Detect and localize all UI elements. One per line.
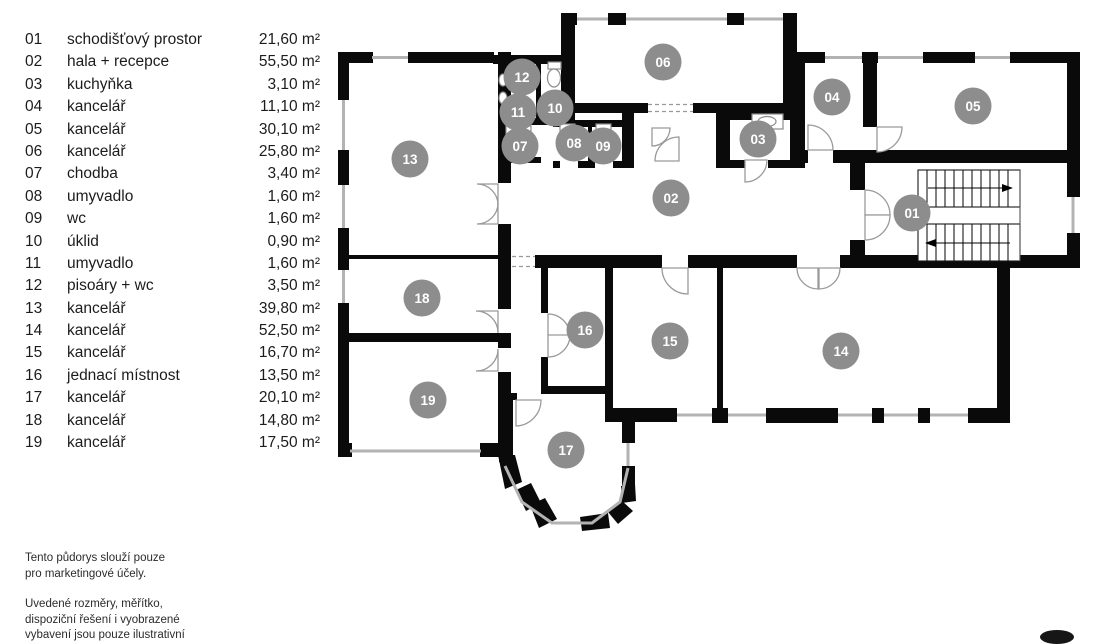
room-number-text: 11 <box>511 105 526 120</box>
room-number-text: 03 <box>750 132 766 147</box>
room-label-07: 07 <box>502 128 539 165</box>
room-number-text: 07 <box>512 139 527 154</box>
room-label-03: 03 <box>740 121 777 158</box>
room-label-17: 17 <box>548 432 585 469</box>
room-number-text: 16 <box>577 323 593 338</box>
room-label-11: 11 <box>500 94 537 131</box>
toilet-fixture <box>548 62 562 87</box>
room-number-text: 18 <box>414 291 430 306</box>
room-number-text: 08 <box>566 136 582 151</box>
room-number-text: 09 <box>595 139 610 154</box>
room-label-01: 01 <box>894 195 931 232</box>
room-number-text: 15 <box>662 334 678 349</box>
doors <box>476 125 902 426</box>
room-label-12: 12 <box>504 59 541 96</box>
room-label-18: 18 <box>404 280 441 317</box>
room-label-02: 02 <box>653 180 690 217</box>
staircase <box>918 170 1020 261</box>
room-label-05: 05 <box>955 88 992 125</box>
room-label-16: 16 <box>567 312 604 349</box>
room-label-14: 14 <box>823 333 860 370</box>
room-label-04: 04 <box>814 79 851 116</box>
room-number-text: 06 <box>655 55 671 70</box>
room-number-text: 04 <box>824 90 840 105</box>
room-label-10: 10 <box>537 90 574 127</box>
room-number-text: 05 <box>965 99 981 114</box>
room-number-text: 02 <box>663 191 678 206</box>
room-label-06: 06 <box>645 44 682 81</box>
room-number-text: 13 <box>402 152 418 167</box>
room-number-text: 10 <box>547 101 562 116</box>
room-label-15: 15 <box>652 323 689 360</box>
room-label-09: 09 <box>585 128 622 165</box>
room-number-text: 12 <box>514 70 529 85</box>
floor-plan: 01020304050607080910111213141516171819 <box>0 0 1111 635</box>
floorplan-page: { "legend": { "rows": [ {"no":"01","name… <box>0 0 1111 635</box>
room-number-text: 19 <box>420 393 435 408</box>
room-number-text: 17 <box>558 443 573 458</box>
room-number-text: 01 <box>904 206 920 221</box>
room-label-19: 19 <box>410 382 447 419</box>
room-label-13: 13 <box>392 141 429 178</box>
room-number-text: 14 <box>833 344 849 359</box>
